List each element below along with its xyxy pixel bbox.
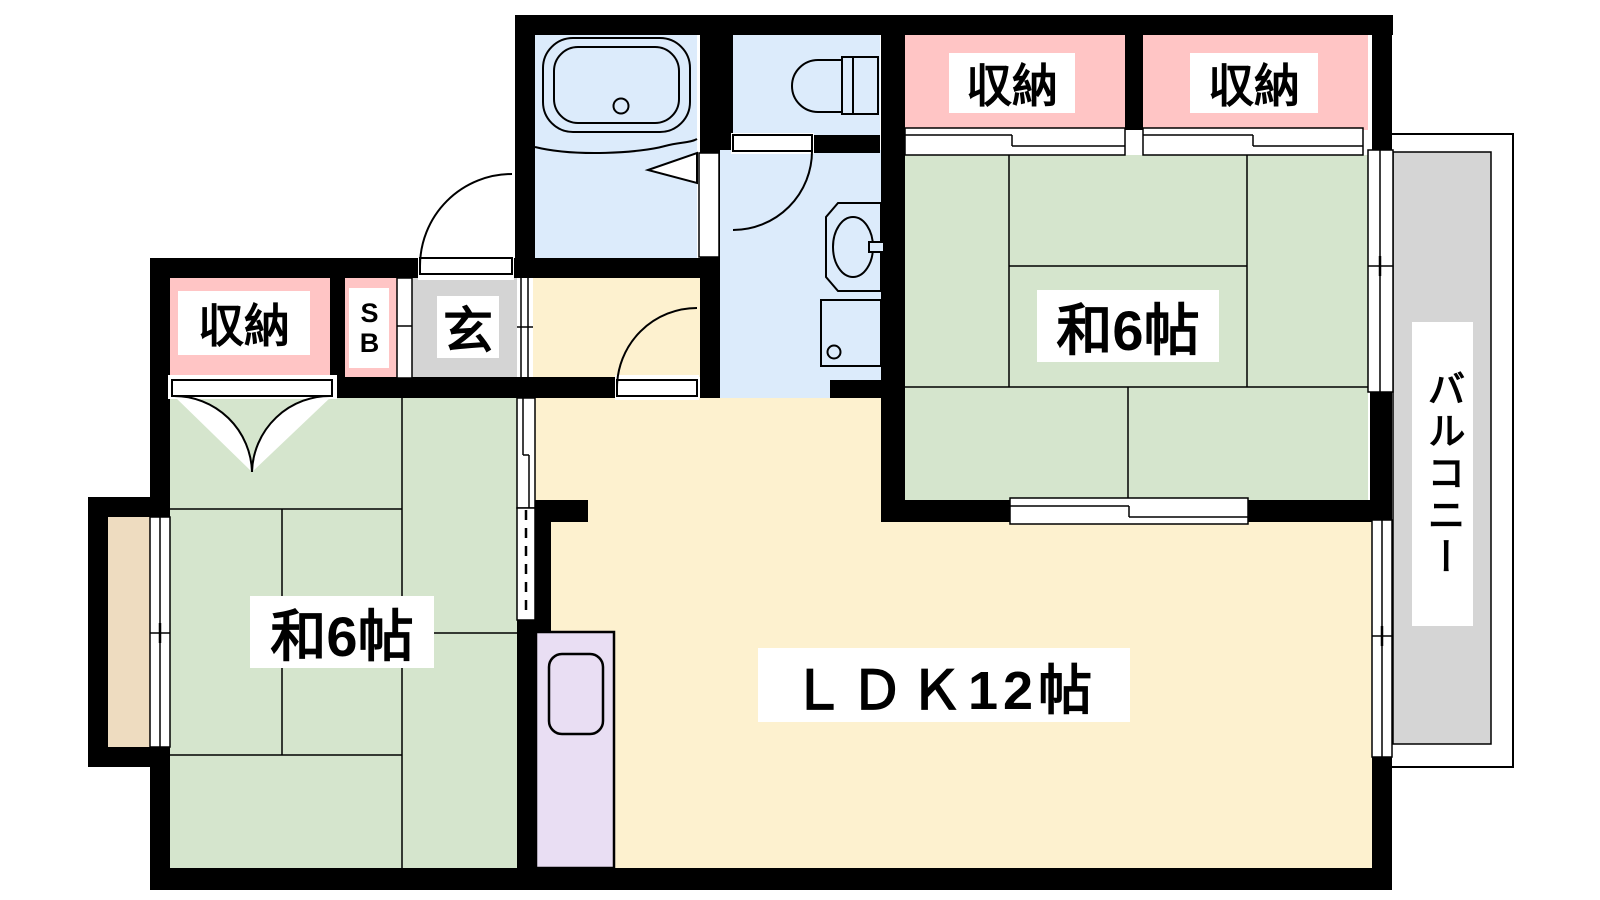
west-room-sliding-door: [517, 398, 535, 508]
room-fills: [108, 33, 1392, 868]
west-room-open-partition: [517, 508, 535, 620]
floor-plan-drawing: [0, 0, 1600, 900]
ldk-label: ＬＤＫ12帖: [758, 648, 1130, 722]
east-window-lower: [1372, 520, 1392, 757]
shoe-box-partition: [397, 278, 412, 378]
closet-sliding-door-1: [905, 128, 1125, 155]
east-window-upper: [1368, 150, 1393, 392]
kitchen-sink: [536, 632, 614, 868]
toilet: [792, 57, 878, 114]
entrance-step: [517, 278, 533, 377]
hallway-floor: [533, 278, 700, 377]
bay-window-floor: [108, 517, 150, 747]
japanese-room-east-label: 和6帖: [1037, 290, 1219, 362]
japanese-room-west-label: 和6帖: [250, 596, 434, 668]
bay-window: [150, 517, 170, 747]
shoe-box-label: SB: [349, 288, 389, 368]
storage-ne-2-label: 収納: [1190, 53, 1318, 113]
floor-plan: 収納 SB 玄 収納 収納 和6帖 和6帖 ＬＤＫ12帖 バルコニー: [0, 0, 1600, 900]
entrance-label: 玄: [437, 296, 499, 358]
washbasin: [826, 203, 884, 291]
storage-west-label: 収納: [178, 291, 310, 355]
entrance-door: [418, 174, 514, 280]
storage-ne-1-label: 収納: [949, 53, 1075, 113]
east-room-sliding-door: [1010, 498, 1248, 524]
washing-machine: [821, 300, 881, 366]
closet-sliding-door-2: [1143, 128, 1363, 155]
balcony-label: バルコニー: [1412, 322, 1473, 626]
